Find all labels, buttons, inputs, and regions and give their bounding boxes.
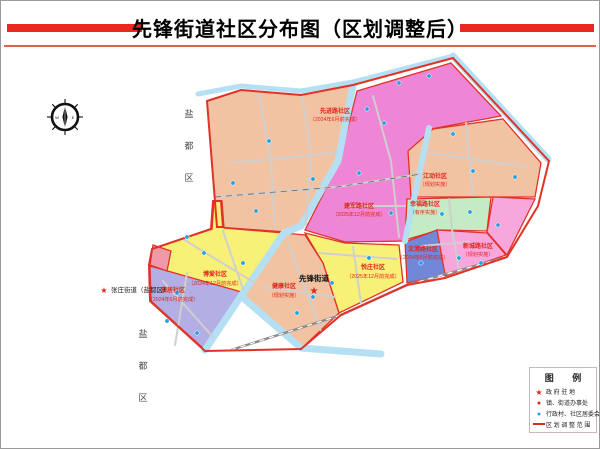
legend-red-line-icon <box>533 423 545 425</box>
community-map: 先进路社区 （2024年6月前完成） 建军路社区 （2025年12月前完成） 江… <box>1 1 600 449</box>
legend-red-dot-icon: ● <box>537 400 541 407</box>
region-label-xincheng: 新城路社区 <box>463 242 493 250</box>
region-label-xingfu: 幸福路社区 <box>410 200 440 208</box>
region-note-wengang: （2024年6月前完成） <box>398 253 449 261</box>
government-star-icon: ★ <box>310 286 319 297</box>
legend-item-committee: ● 行政村、社区居委会 <box>532 408 594 419</box>
region-note-xianjin: （2024年6月前完成） <box>310 115 361 123</box>
region-note-yuezhuang: （2025年12月前完成） <box>346 272 400 280</box>
region-note-kangju: （2024年6月前完成） <box>148 295 199 303</box>
region-label-boai: 博爱社区 <box>203 270 227 278</box>
zhangzhuang-label: 张庄街道（盐都区） <box>111 285 170 294</box>
region-note-jiankang: （规划实施） <box>268 291 299 299</box>
legend-title: 图 例 <box>532 371 594 384</box>
region-note-jianjun: （2025年12月前完成） <box>332 210 386 218</box>
region-note-xincheng: （规划实施） <box>462 250 493 258</box>
zhangzhuang-star-icon: ★ <box>100 286 107 295</box>
region-note-boai: （2024年12月前完成） <box>188 279 242 287</box>
region-label-jiangdong: 江动社区 <box>423 172 447 180</box>
map-poster: 先锋街道社区分布图（区划调整后） W E 盐都区 盐都区 <box>0 0 600 449</box>
region-label-xianjin: 先进路社区 <box>320 107 350 115</box>
region-note-xingfu: （有序实施） <box>409 208 440 216</box>
legend-box: 图 例 ★ 政 府 驻 地 ● 镇、街道办事处 ● 行政村、社区居委会 区 划 … <box>529 367 597 433</box>
region-label-wengang: 文港路社区 <box>407 245 438 253</box>
legend-blue-dot-icon: ● <box>537 411 541 418</box>
region-label-jianjun: 建军路社区 <box>344 202 374 210</box>
legend-item-boundary: 区 划 调 整 范 围 <box>532 419 594 430</box>
region-label-jiankang: 健康社区 <box>272 282 296 290</box>
region-note-jiangdong: （规划实施） <box>419 180 450 188</box>
street-office-label: 先锋街道 <box>299 273 329 283</box>
region-label-yuezhuang: 悦庄社区 <box>361 263 385 271</box>
